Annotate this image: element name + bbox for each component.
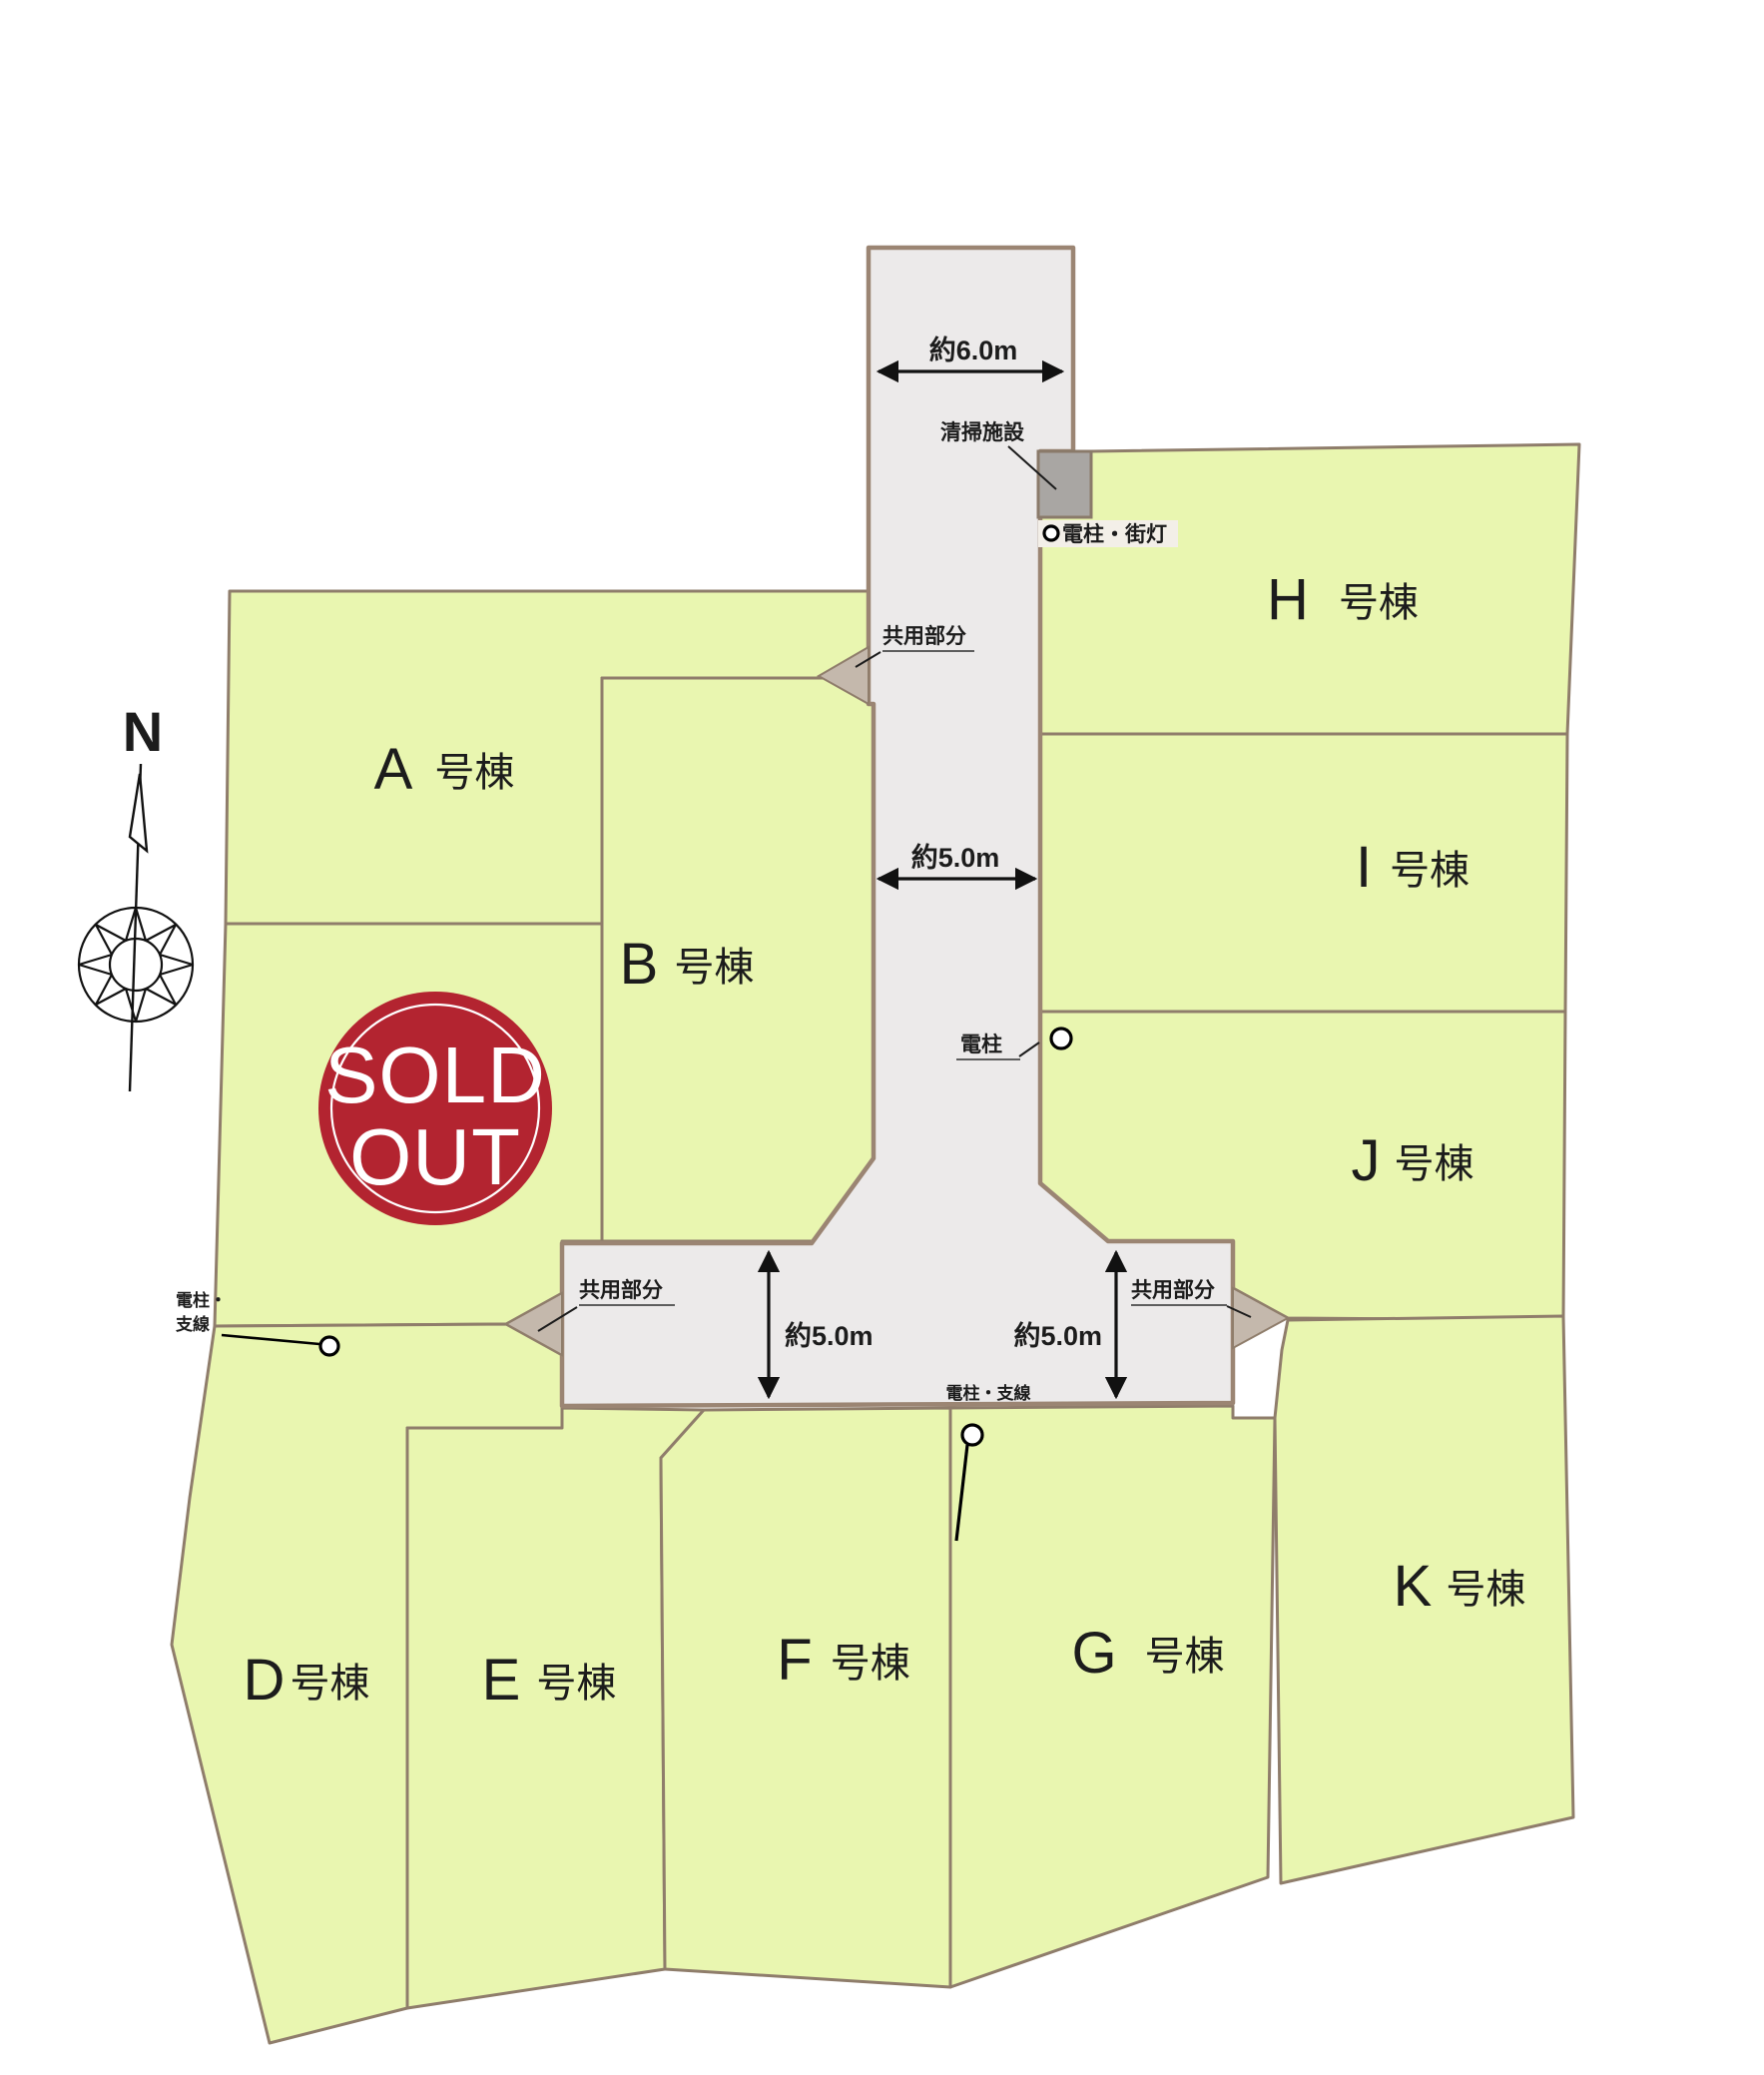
pole-guywire-left-label-line1: 電柱・	[176, 1290, 227, 1310]
pole-streetlight-callout: 電柱・街灯	[1038, 520, 1178, 547]
compass: N	[79, 700, 193, 1091]
pole-guywire-bottom-marker	[962, 1425, 982, 1445]
road-width-main-label: 約5.0m	[911, 842, 1000, 873]
pole-mid-label: 電柱	[960, 1033, 1002, 1056]
site-plan-page: A号棟 B号棟 D号棟 E号棟 F号棟 G号棟	[0, 0, 1764, 2075]
lot-F-parcel	[661, 1408, 950, 1987]
common-area-right-label: 共用部分	[1131, 1278, 1215, 1302]
road-width-right-label: 約5.0m	[1013, 1320, 1102, 1351]
common-area-upper-label: 共用部分	[882, 624, 966, 648]
cleaning-facility-box	[1038, 451, 1091, 517]
lot-E: E号棟	[407, 1408, 704, 2008]
pole-streetlight-label: 電柱・街灯	[1062, 522, 1167, 546]
cleaning-facility-label: 清掃施設	[940, 420, 1025, 444]
pole-streetlight-marker	[1044, 526, 1058, 540]
lot-H: H号棟	[1040, 444, 1579, 734]
lot-E-parcel	[407, 1408, 704, 2008]
sold-out-text-line1: SOLD	[324, 1031, 546, 1119]
pole-mid-marker	[1051, 1029, 1071, 1048]
road-width-top-label: 約6.0m	[929, 335, 1018, 365]
lot-I-parcel	[1040, 734, 1567, 1012]
lot-I: I号棟	[1040, 734, 1567, 1012]
pole-guywire-bottom-label: 電柱・支線	[946, 1383, 1031, 1403]
common-area-left-label: 共用部分	[579, 1278, 663, 1302]
lot-G-parcel	[950, 1406, 1275, 1987]
lot-H-parcel	[1040, 444, 1579, 734]
lot-G: G号棟	[950, 1406, 1275, 1987]
sold-out-text-line2: OUT	[349, 1112, 521, 1201]
sold-out-badge: SOLD OUT	[318, 992, 552, 1225]
lot-B: B号棟	[602, 678, 874, 1241]
lot-K: K号棟	[1275, 1316, 1573, 1883]
compass-needle-flag	[130, 774, 147, 851]
subdivision-map: A号棟 B号棟 D号棟 E号棟 F号棟 G号棟	[0, 0, 1764, 2075]
pole-guywire-left-marker	[320, 1337, 338, 1355]
lot-F: F号棟	[661, 1408, 950, 1987]
pole-guywire-left-label-line2: 支線	[176, 1314, 210, 1334]
road-width-left-label: 約5.0m	[785, 1320, 874, 1351]
compass-north-label: N	[123, 700, 163, 763]
